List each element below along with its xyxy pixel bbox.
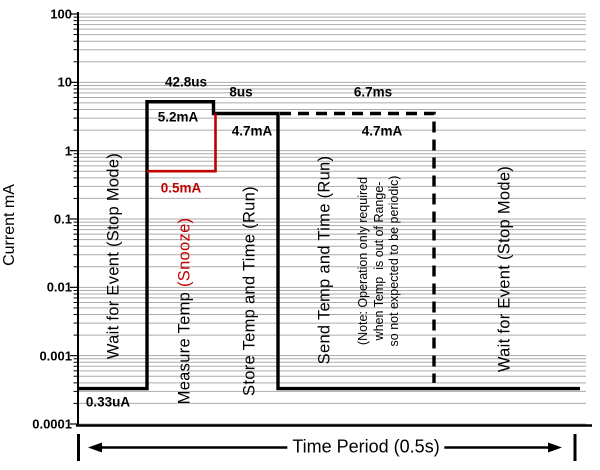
- current-label-send: 4.7mA: [362, 124, 403, 139]
- snooze-current-label: 0.5mA: [161, 181, 202, 196]
- duration-label-store: 8us: [229, 85, 252, 100]
- power-profile-chart: Current mA 100 10 1 0.1 0.01 0.001 0.000…: [0, 0, 600, 470]
- y-tick-label-0p01: 0.01: [0, 280, 72, 295]
- send-note-line-1: (Note: Operation only required: [356, 176, 372, 347]
- arrowhead-icon: [548, 443, 562, 453]
- y-tick-label-0p1: 0.1: [0, 212, 72, 227]
- current-label-measure: 5.2mA: [158, 110, 199, 125]
- y-tick-label-100: 100: [0, 7, 72, 22]
- time-period-label: Time Period (0.5s): [287, 437, 444, 458]
- send-phase-note: (Note: Operation only required when Temp…: [356, 176, 403, 347]
- current-label-store: 4.7mA: [232, 124, 273, 139]
- baseline-current-label: 0.33uA: [86, 395, 130, 410]
- send-note-line-2: when Temp is out of Range-: [371, 176, 387, 347]
- duration-label-measure: 42.8us: [165, 75, 207, 90]
- y-tick-label-0p0001: 0.0001: [0, 417, 72, 432]
- phase-label-measure-black: Measure Temp: [176, 287, 194, 404]
- y-tick-label-10: 10: [0, 75, 72, 90]
- duration-label-send: 6.7ms: [354, 85, 392, 100]
- y-tick-label-1: 1: [0, 144, 72, 159]
- phase-label-store-run: Store Temp and Time (Run): [241, 186, 260, 396]
- phase-label-wait-stop-1: Wait for Event (Stop Mode): [105, 153, 124, 359]
- arrowhead-icon: [88, 443, 102, 453]
- phase-label-wait-stop-2: Wait for Event (Stop Mode): [496, 166, 515, 372]
- phase-label-send-run: Send Temp and Time (Run): [316, 156, 335, 365]
- phase-label-measure-snooze: Measure Temp (Snooze): [176, 218, 195, 405]
- y-tick-label-0p001: 0.001: [0, 349, 72, 364]
- phase-label-snooze-red: (Snooze): [176, 218, 194, 287]
- send-note-line-3: so not expected to be periodic): [387, 176, 403, 347]
